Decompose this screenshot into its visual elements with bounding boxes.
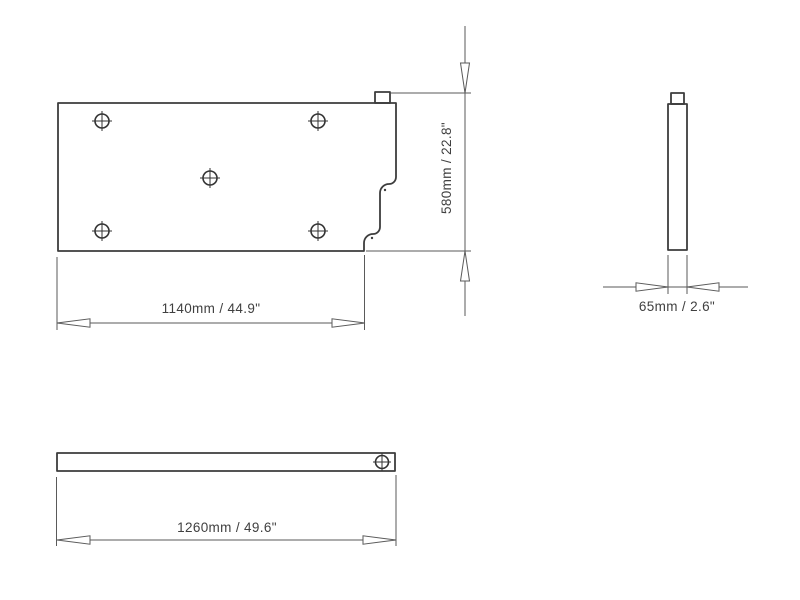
arrowhead-left-icon xyxy=(57,319,90,327)
dimension-width-side: 65mm / 2.6" xyxy=(603,255,748,314)
arrowhead-right-icon xyxy=(332,319,365,327)
arrowhead-right-icon xyxy=(363,536,396,544)
dimension-label-overall-width: 1260mm / 49.6" xyxy=(177,520,277,535)
arrowhead-up-icon xyxy=(461,251,470,281)
front-view xyxy=(57,453,395,471)
arrowhead-down-icon xyxy=(461,63,470,93)
arrowhead-left-icon xyxy=(687,283,719,291)
dimension-label-thickness: 65mm / 2.6" xyxy=(639,299,715,314)
plate-top-tab xyxy=(375,92,390,103)
side-profile-body xyxy=(668,104,687,250)
mounting-hole-center xyxy=(200,168,220,188)
side-view xyxy=(668,93,687,250)
arrowhead-left-icon xyxy=(57,536,90,544)
dimension-height-plan: 580mm / 22.8" xyxy=(366,26,471,316)
dimension-label-width: 1140mm / 44.9" xyxy=(162,301,261,316)
dimension-width-front: 1260mm / 49.6" xyxy=(57,475,397,546)
mounting-hole xyxy=(308,111,328,131)
arrowhead-right-icon xyxy=(636,283,668,291)
drawing-svg: 580mm / 22.8" 1140mm / 44.9" 65mm / 2.6" xyxy=(0,0,800,600)
mounting-hole xyxy=(373,453,391,471)
side-profile-cap xyxy=(671,93,684,104)
mounting-hole xyxy=(308,221,328,241)
dimension-label-height: 580mm / 22.8" xyxy=(439,122,454,214)
fillet-center-mark xyxy=(371,237,373,239)
mounting-hole xyxy=(92,221,112,241)
mounting-hole xyxy=(92,111,112,131)
bar-outline xyxy=(57,453,395,471)
fillet-center-mark xyxy=(384,189,386,191)
dimension-width-plan: 1140mm / 44.9" xyxy=(57,255,365,330)
technical-drawing-canvas: 580mm / 22.8" 1140mm / 44.9" 65mm / 2.6" xyxy=(0,0,800,600)
plan-view xyxy=(58,92,396,251)
